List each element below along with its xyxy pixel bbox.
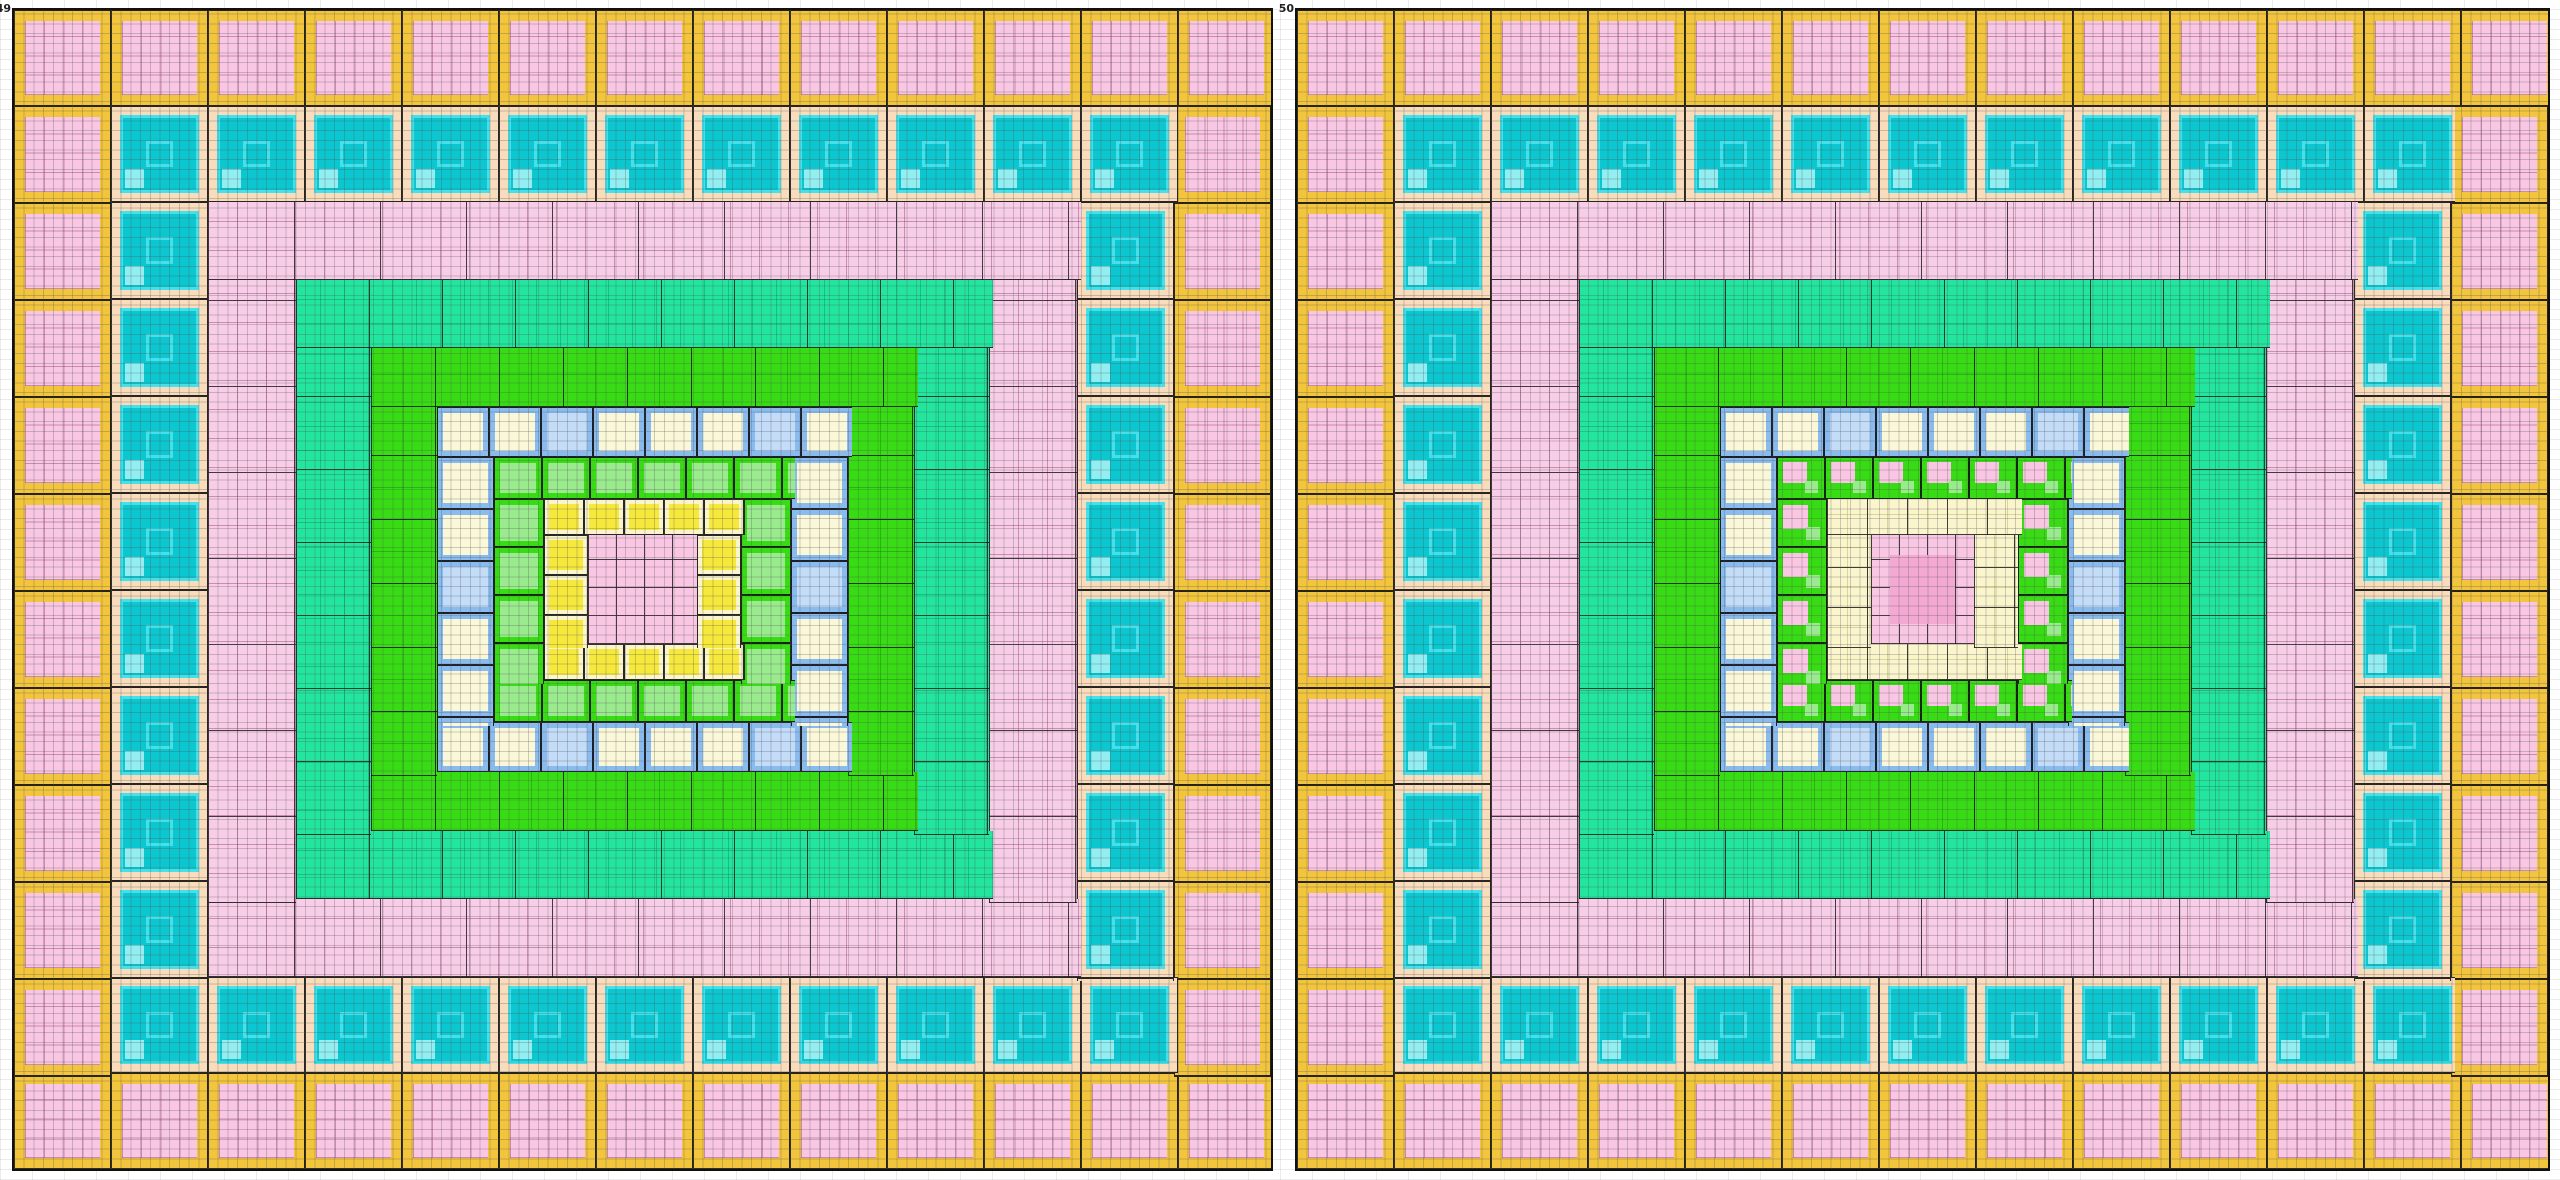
blue-cream-checker-tiles-tile <box>1824 407 1876 457</box>
teal-pinwheel-tiles-tile <box>111 106 208 202</box>
blue-cream-checker-tiles-right <box>791 457 848 726</box>
teal-pinwheel-tiles-tile <box>499 106 596 202</box>
aquamarine-field-top <box>296 280 993 348</box>
teal-pinwheel-tiles-tile <box>790 106 887 202</box>
gold-pink-frame-tiles-tile <box>693 1073 790 1169</box>
teal-pinwheel-tiles-tile <box>2364 977 2455 1073</box>
teal-pinwheel-tiles-tile <box>111 396 208 493</box>
green-mini-tiles-tile <box>494 680 542 722</box>
pink-field-top <box>1491 202 2358 280</box>
green-pink-mini-tiles-right <box>2018 499 2068 684</box>
gold-pink-frame-tiles-tile <box>1297 979 1394 1076</box>
gold-pink-frame-tiles-tile <box>1297 1076 1394 1077</box>
gold-pink-frame-tiles-tile <box>14 300 111 397</box>
blue-cream-checker-tiles-bottom <box>437 722 852 772</box>
frame-number-label-49: 49 <box>0 3 11 14</box>
blue-cream-checker-tiles-tile <box>1720 457 1777 509</box>
green-field-left <box>1654 407 1720 776</box>
blue-cream-checker-tiles-tile <box>1980 722 2032 772</box>
blue-cream-checker-tiles-tile <box>791 665 848 717</box>
teal-pinwheel-tiles-tile <box>1491 977 1588 1073</box>
ring-pink-field <box>1491 202 2354 977</box>
green-mini-tiles-tile <box>494 643 544 684</box>
gold-pink-frame-tiles-tile <box>2451 591 2548 688</box>
teal-pinwheel-tiles-tile <box>1394 202 1491 299</box>
blue-cream-checker-tiles-tile <box>791 509 848 561</box>
blue-cream-checker-tiles-tile <box>541 407 593 457</box>
gold-pink-frame-tiles-tile <box>1976 1073 2073 1169</box>
green-mini-tiles-tile <box>494 457 542 499</box>
green-mini-tiles-tile <box>494 547 544 595</box>
green-mini-tiles-tile <box>686 457 734 499</box>
pink-field-left <box>1491 280 1579 903</box>
green-mini-tiles-tile <box>590 457 638 499</box>
ring-green-pink-mini-tiles <box>1777 457 2068 722</box>
yellow-mini-tiles-tile <box>697 615 741 648</box>
green-mini-tiles-tile <box>638 457 686 499</box>
teal-pinwheel-tiles-tile <box>1077 396 1174 493</box>
gold-pink-frame-tiles-top <box>1297 10 2550 106</box>
gold-pink-frame-tiles-tile <box>1879 10 1976 106</box>
teal-pinwheel-tiles-tile <box>2354 590 2451 687</box>
blue-cream-checker-tiles-right <box>2068 457 2125 726</box>
pattern-frame-49 <box>12 8 1273 1171</box>
teal-pinwheel-tiles-tile <box>2354 493 2451 590</box>
frame-number-label-50: 50 <box>1274 3 1294 14</box>
teal-pinwheel-tiles-tile <box>1879 106 1976 202</box>
teal-pinwheel-tiles-tile <box>1077 784 1174 881</box>
green-mini-tiles-tile <box>741 499 791 547</box>
gold-pink-frame-tiles-tile <box>2451 979 2548 1076</box>
green-field-right <box>848 407 914 776</box>
gold-pink-frame-tiles-tile <box>1297 203 1394 300</box>
teal-pinwheel-tiles-right <box>1077 202 1174 981</box>
blue-cream-checker-tiles-tile <box>437 665 494 717</box>
teal-pinwheel-tiles-tile <box>693 106 790 202</box>
yellow-mini-tiles-bottom <box>544 644 745 680</box>
gold-pink-frame-tiles-tile <box>887 1073 984 1169</box>
pattern-frame-50 <box>1295 8 2550 1171</box>
cream-field-top <box>1827 499 2022 535</box>
green-mini-tiles-tile <box>734 680 782 722</box>
blue-cream-checker-tiles-tile <box>437 717 494 726</box>
yellow-mini-tiles-tile <box>704 499 744 535</box>
ring-cream-field <box>1827 499 2018 680</box>
ring-gold-pink-frame-tiles <box>1297 10 2548 1169</box>
teal-pinwheel-tiles-tile <box>1588 977 1685 1073</box>
gold-pink-frame-tiles-tile <box>1297 591 1394 688</box>
gold-pink-frame-tiles-tile <box>2451 300 2548 397</box>
yellow-mini-tiles-top <box>544 499 745 535</box>
gold-pink-frame-tiles-tile <box>2073 1073 2170 1169</box>
teal-pinwheel-tiles-tile <box>2354 202 2451 299</box>
blue-cream-checker-tiles-tile <box>437 722 489 772</box>
gold-pink-frame-tiles-bottom <box>14 1073 1273 1169</box>
pink-field-bottom <box>208 899 1081 977</box>
blue-cream-checker-tiles-tile <box>1720 722 1772 772</box>
gold-pink-frame-tiles-tile <box>887 10 984 106</box>
teal-pinwheel-tiles-tile <box>1685 106 1782 202</box>
teal-pinwheel-tiles-left <box>1394 202 1491 981</box>
blue-cream-checker-tiles-tile <box>697 722 749 772</box>
gold-pink-frame-tiles-right <box>2451 106 2548 1077</box>
green-pink-mini-tiles-tile <box>1921 680 1969 722</box>
gold-pink-frame-tiles-tile <box>402 1073 499 1169</box>
blue-cream-checker-tiles-tile <box>645 722 697 772</box>
green-pink-mini-tiles-tile <box>2018 499 2068 547</box>
yellow-mini-tiles-tile <box>704 644 744 680</box>
gold-pink-frame-tiles-tile <box>2073 10 2170 106</box>
gold-pink-frame-tiles-tile <box>1782 10 1879 106</box>
green-mini-tiles-tile <box>638 680 686 722</box>
green-pink-mini-tiles-tile <box>1825 457 1873 499</box>
pink-field-left <box>208 280 296 903</box>
gold-pink-frame-tiles-tile <box>1174 203 1271 300</box>
blue-cream-checker-tiles-tile <box>2068 509 2125 561</box>
blue-cream-checker-tiles-tile <box>593 407 645 457</box>
green-mini-tiles-tile <box>741 643 791 684</box>
teal-pinwheel-tiles-tile <box>111 978 208 981</box>
gold-pink-frame-tiles-tile <box>111 10 208 106</box>
gold-pink-frame-tiles-tile <box>305 1073 402 1169</box>
gold-pink-frame-tiles-tile <box>1782 1073 1879 1169</box>
blue-cream-checker-tiles-tile <box>1980 407 2032 457</box>
blue-cream-checker-tiles-tile <box>437 457 494 509</box>
gold-pink-frame-tiles-left <box>1297 106 1394 1077</box>
blue-cream-checker-tiles-tile <box>791 457 848 509</box>
teal-pinwheel-tiles-tile <box>1077 202 1174 299</box>
teal-pinwheel-tiles-tile <box>111 784 208 881</box>
blue-cream-checker-tiles-tile <box>2068 717 2125 726</box>
teal-pinwheel-tiles-tile <box>1394 687 1491 784</box>
yellow-mini-tiles-tile <box>544 499 584 535</box>
blue-cream-checker-tiles-tile <box>749 722 801 772</box>
green-pink-mini-tiles-tile <box>2065 457 2072 499</box>
blue-cream-checker-tiles-tile <box>2032 407 2084 457</box>
green-mini-tiles-tile <box>734 457 782 499</box>
blue-cream-checker-tiles-tile <box>1720 509 1777 561</box>
green-pink-mini-tiles-tile <box>1969 457 2017 499</box>
ring-blue-cream-checker-tiles <box>437 407 848 772</box>
teal-pinwheel-tiles-tile <box>2170 977 2267 1073</box>
gold-pink-frame-tiles-tile <box>1174 1076 1271 1077</box>
gold-pink-frame-tiles-tile <box>2170 10 2267 106</box>
yellow-mini-tiles-tile <box>664 499 704 535</box>
blue-cream-checker-tiles-tile <box>749 407 801 457</box>
gold-pink-frame-tiles-tile <box>1174 882 1271 979</box>
blue-cream-checker-tiles-tile <box>437 407 489 457</box>
gold-pink-frame-tiles-tile <box>2451 688 2548 785</box>
gold-pink-frame-tiles-tile <box>1174 979 1271 1076</box>
green-pink-mini-tiles-tile <box>2065 680 2072 722</box>
gold-pink-frame-tiles-tile <box>1297 688 1394 785</box>
teal-pinwheel-tiles-tile <box>984 106 1081 202</box>
gold-pink-frame-tiles-tile <box>2364 10 2461 106</box>
teal-pinwheel-tiles-tile <box>1976 106 2073 202</box>
teal-pinwheel-tiles-tile <box>887 977 984 1073</box>
gold-pink-frame-tiles-tile <box>2451 882 2548 979</box>
green-mini-tiles-tile <box>494 499 544 547</box>
teal-pinwheel-tiles-tile <box>1077 299 1174 396</box>
teal-pinwheel-tiles-tile <box>1077 978 1174 981</box>
gold-pink-frame-tiles-tile <box>1174 688 1271 785</box>
blue-cream-checker-tiles-tile <box>791 613 848 665</box>
gold-pink-frame-tiles-tile <box>1394 1073 1491 1169</box>
gold-pink-frame-tiles-tile <box>2461 10 2550 106</box>
blue-cream-checker-tiles-tile <box>1772 407 1824 457</box>
yellow-mini-tiles-tile <box>697 575 741 615</box>
gold-pink-frame-tiles-tile <box>14 106 111 203</box>
ring-aquamarine-field <box>1579 280 2266 899</box>
teal-pinwheel-tiles-tile <box>1782 977 1879 1073</box>
pink-field-right <box>989 280 1077 903</box>
gold-pink-frame-tiles-tile <box>14 203 111 300</box>
teal-pinwheel-tiles-tile <box>208 106 305 202</box>
teal-pinwheel-tiles-bottom <box>111 977 1178 1073</box>
green-pink-mini-tiles-tile <box>1777 643 1827 684</box>
teal-pinwheel-tiles-tile <box>596 977 693 1073</box>
teal-pinwheel-tiles-tile <box>2354 687 2451 784</box>
green-pink-mini-tiles-bottom <box>1777 680 2072 722</box>
gold-pink-frame-tiles-tile <box>693 10 790 106</box>
gold-pink-frame-tiles-tile <box>2267 10 2364 106</box>
teal-pinwheel-tiles-tile <box>2354 299 2451 396</box>
green-mini-tiles-tile <box>542 680 590 722</box>
yellow-mini-tiles-tile <box>584 499 624 535</box>
teal-pinwheel-tiles-tile <box>1394 590 1491 687</box>
green-mini-tiles-bottom <box>494 680 795 722</box>
gold-pink-frame-tiles-tile <box>208 1073 305 1169</box>
gold-pink-frame-tiles-tile <box>14 882 111 979</box>
gold-pink-frame-tiles-tile <box>984 1073 1081 1169</box>
green-pink-mini-tiles-tile <box>1777 499 1827 547</box>
teal-pinwheel-tiles-tile <box>1081 106 1178 202</box>
blue-cream-checker-tiles-tile <box>1720 561 1777 613</box>
green-field-top <box>1654 348 2195 407</box>
gold-pink-frame-tiles-right <box>1174 106 1271 1077</box>
ring-gold-pink-frame-tiles <box>14 10 1271 1169</box>
gold-pink-frame-tiles-tile <box>1297 882 1394 979</box>
aquamarine-field-bottom <box>296 831 993 899</box>
aquamarine-field-left <box>296 348 371 835</box>
center-block <box>1871 535 1974 644</box>
ring-blue-cream-checker-tiles <box>1720 407 2125 772</box>
green-mini-tiles-tile <box>741 595 791 643</box>
teal-pinwheel-tiles-tile <box>1077 881 1174 978</box>
teal-pinwheel-tiles-tile <box>984 977 1081 1073</box>
green-pink-mini-tiles-tile <box>2018 643 2068 684</box>
gold-pink-frame-tiles-tile <box>499 10 596 106</box>
blue-cream-checker-tiles-tile <box>2068 561 2125 613</box>
gold-pink-frame-tiles-tile <box>2451 494 2548 591</box>
gold-pink-frame-tiles-tile <box>984 10 1081 106</box>
gold-pink-frame-tiles-tile <box>1178 10 1273 106</box>
ring-aquamarine-field <box>296 280 989 899</box>
aquamarine-field-bottom <box>1579 831 2270 899</box>
green-field-bottom <box>371 772 918 831</box>
blue-cream-checker-tiles-tile <box>1876 407 1928 457</box>
gold-pink-frame-tiles-tile <box>14 1073 111 1169</box>
gold-pink-frame-tiles-tile <box>1297 1073 1394 1169</box>
gold-pink-frame-tiles-tile <box>1879 1073 1976 1169</box>
green-pink-mini-tiles-tile <box>1777 547 1827 595</box>
green-mini-tiles-tile <box>542 457 590 499</box>
gold-pink-frame-tiles-tile <box>1394 10 1491 106</box>
teal-pinwheel-tiles-tile <box>1081 977 1178 1073</box>
yellow-mini-tiles-right <box>697 535 741 648</box>
teal-pinwheel-tiles-tile <box>1077 590 1174 687</box>
gold-pink-frame-tiles-tile <box>1081 1073 1178 1169</box>
green-field-top <box>371 348 918 407</box>
gold-pink-frame-tiles-tile <box>1174 300 1271 397</box>
teal-pinwheel-tiles-tile <box>499 977 596 1073</box>
gold-pink-frame-tiles-tile <box>2170 1073 2267 1169</box>
teal-pinwheel-tiles-tile <box>1394 978 1491 981</box>
blue-cream-checker-tiles-tile <box>1928 722 1980 772</box>
teal-pinwheel-tiles-tile <box>1394 493 1491 590</box>
green-pink-mini-tiles-top <box>1777 457 2072 499</box>
teal-pinwheel-tiles-tile <box>111 687 208 784</box>
gold-pink-frame-tiles-top <box>14 10 1273 106</box>
gold-pink-frame-tiles-bottom <box>1297 1073 2550 1169</box>
ring-green-field <box>1654 348 2191 831</box>
blue-cream-checker-tiles-top <box>437 407 852 457</box>
center-block <box>588 535 697 644</box>
ring-green-field <box>371 348 914 831</box>
teal-pinwheel-tiles-tile <box>402 106 499 202</box>
teal-pinwheel-tiles-tile <box>111 299 208 396</box>
cream-field-bottom <box>1827 644 2022 680</box>
teal-pinwheel-tiles-tile <box>1394 299 1491 396</box>
gold-pink-frame-tiles-tile <box>14 979 111 1076</box>
gold-pink-frame-tiles-tile <box>1588 10 1685 106</box>
teal-pinwheel-tiles-tile <box>1879 977 1976 1073</box>
gold-pink-frame-tiles-tile <box>1081 10 1178 106</box>
teal-pinwheel-tiles-tile <box>1394 784 1491 881</box>
cream-field-right <box>1974 535 2018 648</box>
green-pink-mini-tiles-tile <box>2017 680 2065 722</box>
green-pink-mini-tiles-tile <box>2018 547 2068 595</box>
yellow-mini-tiles-tile <box>697 535 741 575</box>
green-field-left <box>371 407 437 776</box>
teal-pinwheel-tiles-tile <box>1394 106 1491 202</box>
gold-pink-frame-tiles-tile <box>14 591 111 688</box>
blue-cream-checker-tiles-tile <box>437 561 494 613</box>
gold-pink-frame-tiles-tile <box>1685 10 1782 106</box>
gold-pink-frame-tiles-tile <box>1297 785 1394 882</box>
teal-pinwheel-tiles-tile <box>111 881 208 978</box>
pink-field-bottom <box>1491 899 2358 977</box>
blue-cream-checker-tiles-tile <box>791 717 848 726</box>
green-pink-mini-tiles-tile <box>2017 457 2065 499</box>
teal-pinwheel-tiles-tile <box>208 977 305 1073</box>
gold-pink-frame-tiles-tile <box>2461 1073 2550 1169</box>
gold-pink-frame-tiles-tile <box>2364 1073 2461 1169</box>
gold-pink-frame-tiles-tile <box>1178 1073 1273 1169</box>
teal-pinwheel-tiles-tile <box>2354 396 2451 493</box>
blue-cream-checker-tiles-tile <box>489 722 541 772</box>
blue-cream-checker-tiles-top <box>1720 407 2129 457</box>
pink-field-right <box>2266 280 2354 903</box>
gold-pink-frame-tiles-tile <box>14 688 111 785</box>
teal-pinwheel-tiles-tile <box>305 977 402 1073</box>
gold-pink-frame-tiles-tile <box>2451 1076 2548 1077</box>
green-pink-mini-tiles-tile <box>1777 595 1827 643</box>
yellow-mini-tiles-tile <box>544 615 588 648</box>
green-mini-tiles-right <box>741 499 791 684</box>
teal-pinwheel-tiles-tile <box>2073 977 2170 1073</box>
spreadsheet-canvas: 49 50 <box>0 0 2560 1180</box>
teal-pinwheel-tiles-tile <box>111 590 208 687</box>
blue-cream-checker-tiles-tile <box>697 407 749 457</box>
gold-pink-frame-tiles-tile <box>2267 1073 2364 1169</box>
gold-pink-frame-tiles-tile <box>1588 1073 1685 1169</box>
gold-pink-frame-tiles-tile <box>2451 397 2548 494</box>
teal-pinwheel-tiles-bottom <box>1394 977 2455 1073</box>
blue-cream-checker-tiles-tile <box>437 509 494 561</box>
blue-cream-checker-tiles-left <box>1720 457 1777 726</box>
teal-pinwheel-tiles-tile <box>402 977 499 1073</box>
green-pink-mini-tiles-tile <box>1969 680 2017 722</box>
yellow-mini-tiles-tile <box>624 499 664 535</box>
green-mini-tiles-tile <box>741 547 791 595</box>
green-pink-mini-tiles-left <box>1777 499 1827 684</box>
teal-pinwheel-tiles-tile <box>1491 106 1588 202</box>
teal-pinwheel-tiles-tile <box>887 106 984 202</box>
blue-cream-checker-tiles-tile <box>791 561 848 613</box>
teal-pinwheel-tiles-tile <box>305 106 402 202</box>
gold-pink-frame-tiles-tile <box>2451 785 2548 882</box>
teal-pinwheel-tiles-tile <box>2364 106 2455 202</box>
blue-cream-checker-tiles-tile <box>1720 665 1777 717</box>
gold-pink-frame-tiles-tile <box>1174 106 1271 203</box>
blue-cream-checker-tiles-tile <box>801 407 852 457</box>
aquamarine-field-left <box>1579 348 1654 835</box>
green-field-bottom <box>1654 772 2195 831</box>
yellow-mini-tiles-tile <box>544 535 588 575</box>
ring-yellow-mini-tiles <box>544 499 741 680</box>
green-mini-tiles-tile <box>494 595 544 643</box>
teal-pinwheel-tiles-tile <box>1588 106 1685 202</box>
blue-cream-checker-tiles-tile <box>2068 457 2125 509</box>
teal-pinwheel-tiles-tile <box>2267 106 2364 202</box>
gold-pink-frame-tiles-tile <box>1491 1073 1588 1169</box>
teal-pinwheel-tiles-tile <box>1394 881 1491 978</box>
blue-cream-checker-tiles-tile <box>1824 722 1876 772</box>
gold-pink-frame-tiles-tile <box>14 10 111 106</box>
blue-cream-checker-tiles-tile <box>2084 407 2129 457</box>
teal-pinwheel-tiles-tile <box>111 493 208 590</box>
teal-pinwheel-tiles-tile <box>2354 881 2451 978</box>
gold-pink-frame-tiles-tile <box>111 1073 208 1169</box>
green-mini-tiles-tile <box>590 680 638 722</box>
teal-pinwheel-tiles-tile <box>1394 977 1491 1073</box>
green-mini-tiles-tile <box>782 457 795 499</box>
gold-pink-frame-tiles-tile <box>1297 494 1394 591</box>
teal-pinwheel-tiles-tile <box>2354 784 2451 881</box>
teal-pinwheel-tiles-tile <box>1685 977 1782 1073</box>
ring-green-mini-tiles <box>494 457 791 722</box>
yellow-mini-tiles-tile <box>664 644 704 680</box>
green-pink-mini-tiles-tile <box>1873 457 1921 499</box>
yellow-mini-tiles-tile <box>544 644 584 680</box>
gold-pink-frame-tiles-tile <box>1491 10 1588 106</box>
blue-cream-checker-tiles-tile <box>541 722 593 772</box>
gold-pink-frame-tiles-tile <box>2451 203 2548 300</box>
yellow-mini-tiles-tile <box>744 644 745 680</box>
teal-pinwheel-tiles-tile <box>1077 493 1174 590</box>
teal-pinwheel-tiles-tile <box>693 977 790 1073</box>
